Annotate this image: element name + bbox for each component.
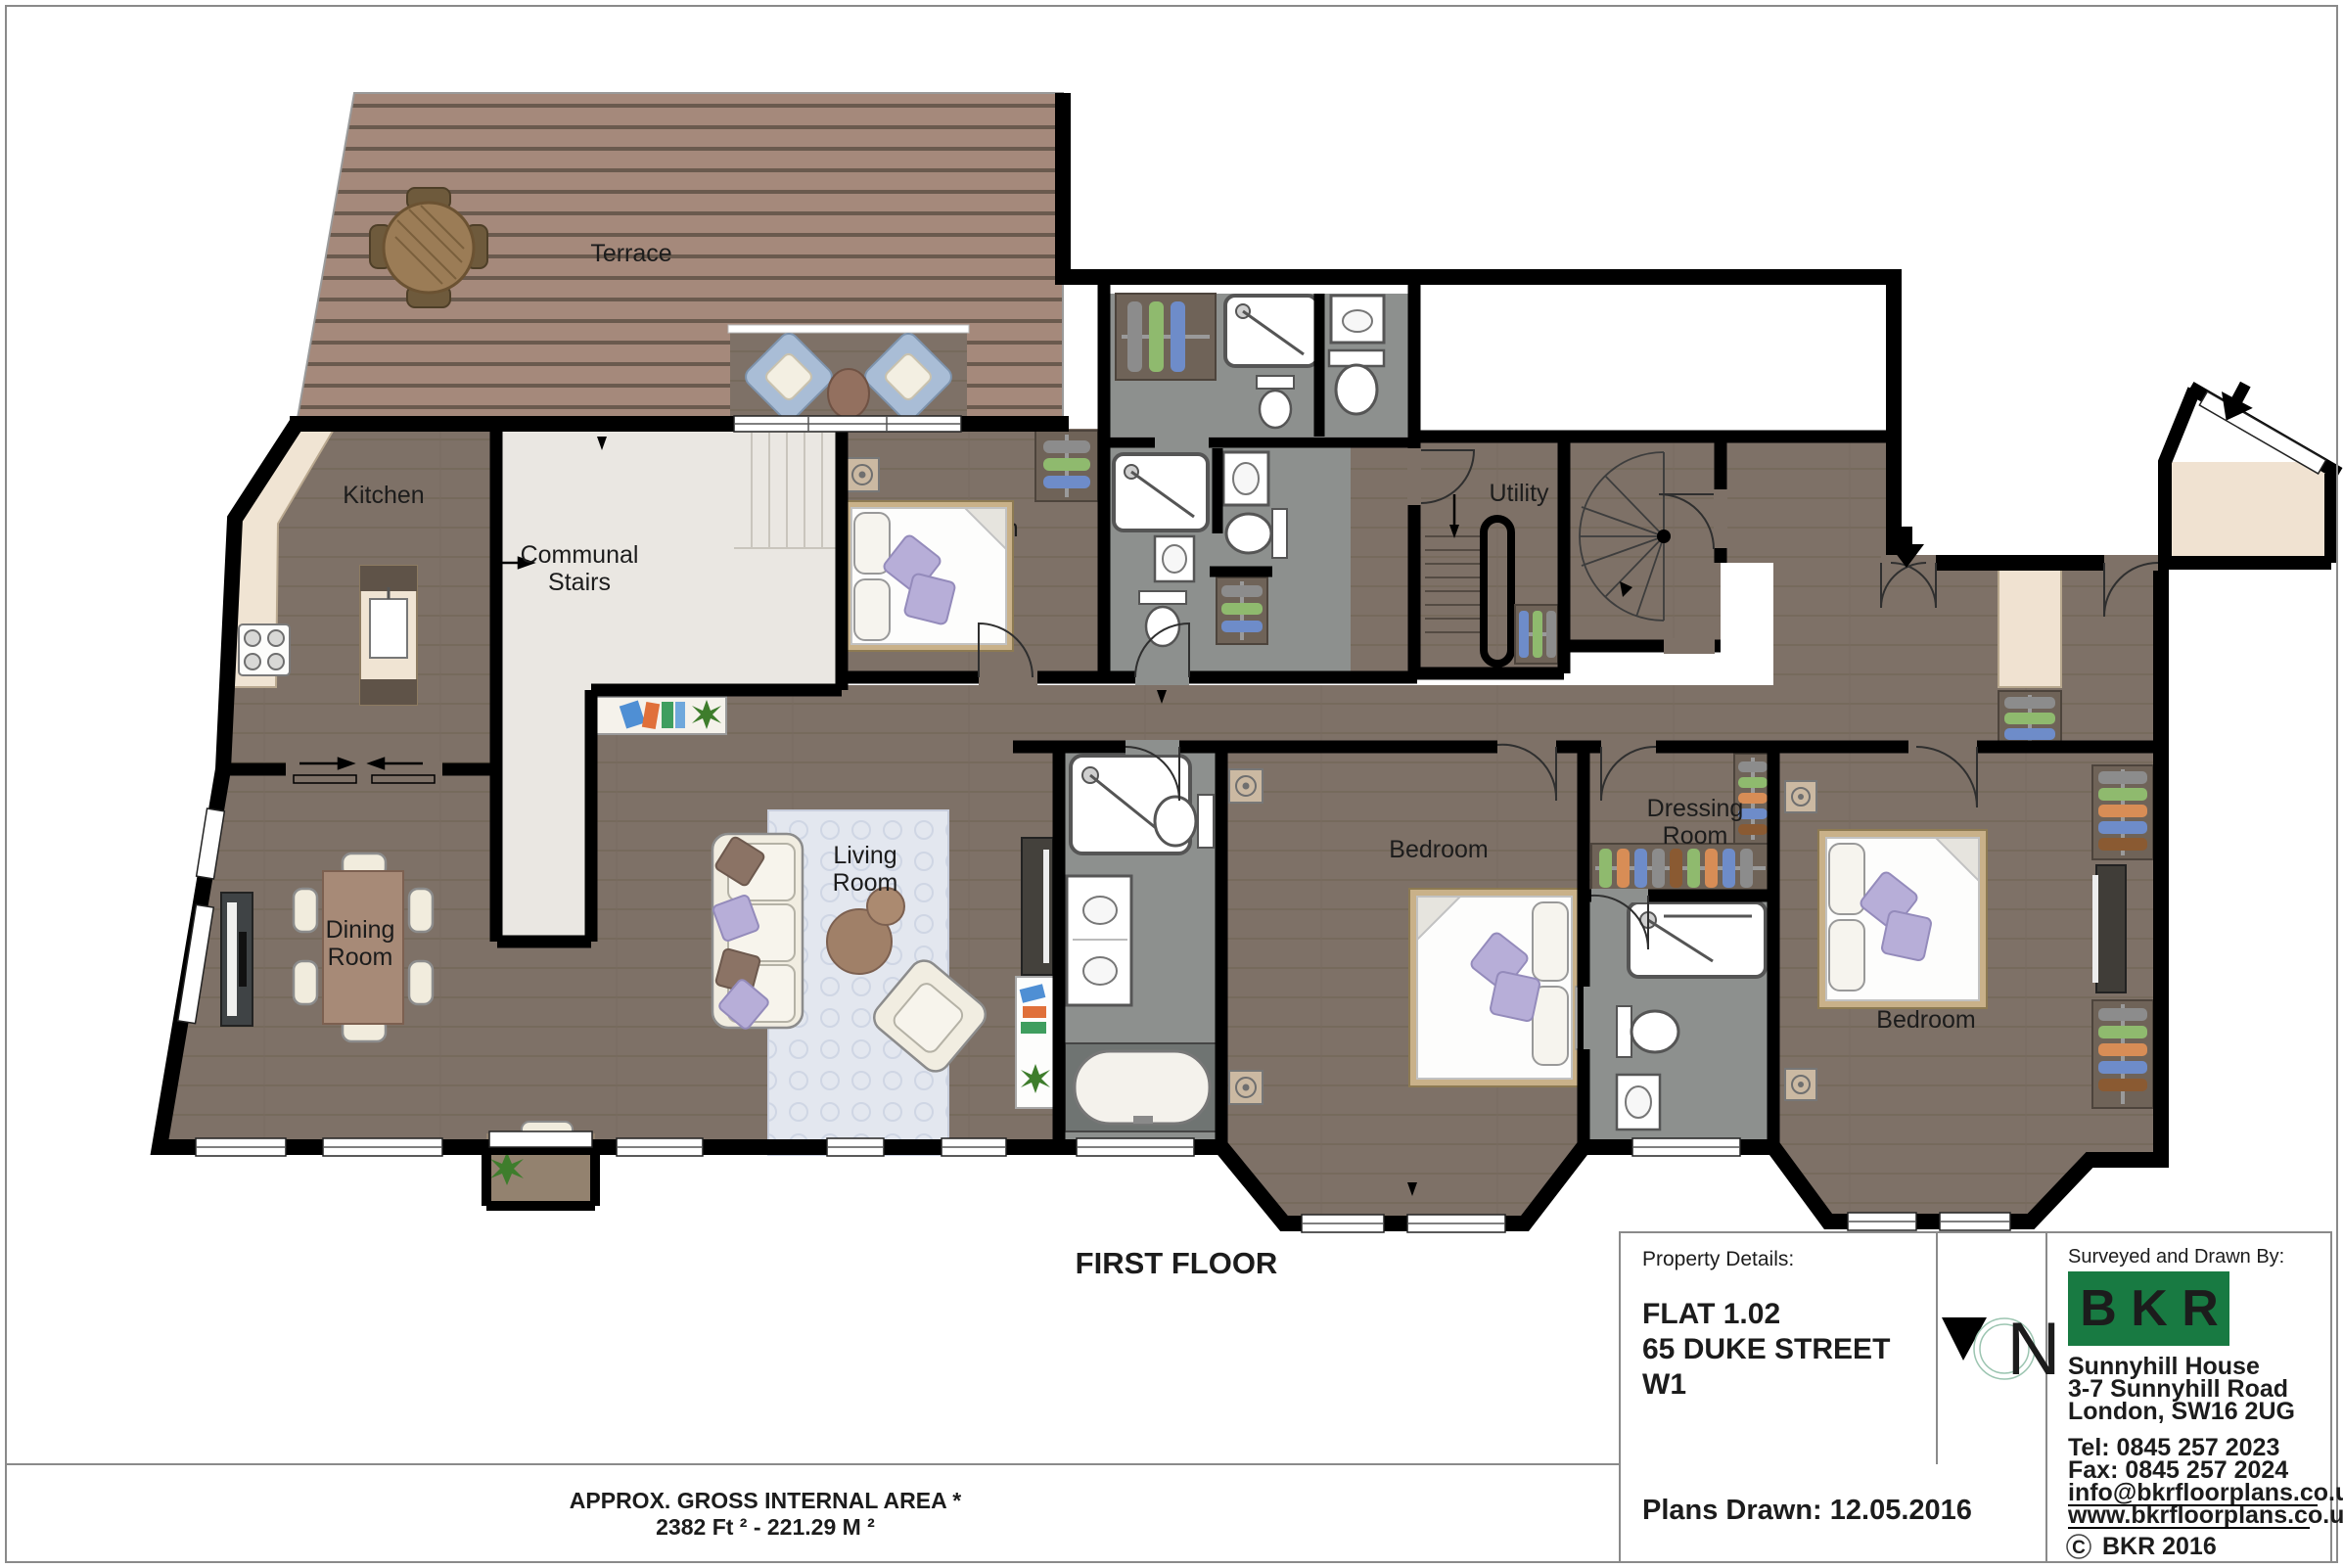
sink-icon [1331, 296, 1384, 343]
wardrobe-hall [1998, 691, 2061, 748]
bathtub-icon [1065, 1043, 1219, 1131]
toilet-icon [1226, 509, 1287, 558]
wall-light [846, 458, 879, 491]
svg-text:Room: Room [328, 944, 393, 971]
sink-icon [1617, 1075, 1660, 1130]
svg-text:2382 Ft ² - 221.29 M ²: 2382 Ft ² - 221.29 M ² [656, 1514, 875, 1540]
plans-drawn-date: Plans Drawn: 12.05.2016 [1642, 1495, 1972, 1526]
floorplan-drawing: Bedroom [0, 0, 2343, 1568]
tv-unit [1022, 838, 1053, 975]
svg-text:London, SW16 2UG: London, SW16 2UG [2068, 1398, 2295, 1425]
sofa [712, 834, 803, 1031]
double-bed-right [1818, 830, 1987, 1008]
shelf-unit [1016, 977, 1055, 1108]
landing-floor [2165, 462, 2331, 556]
console-table [587, 697, 726, 734]
north-letter: N [2007, 1308, 2061, 1391]
wardrobe-icon [1515, 605, 1558, 664]
fireplace [221, 893, 253, 1026]
dining-room-label: Dining [326, 916, 395, 944]
sink-icon [1155, 536, 1194, 581]
floorplan-page: Bedroom [0, 0, 2343, 1568]
double-bed-center [1409, 889, 1580, 1086]
copyright-text: BKR 2016 [2102, 1533, 2217, 1560]
shower-icon [1114, 454, 1208, 530]
toilet-icon [1257, 376, 1294, 428]
living-room-label: Living [833, 842, 896, 869]
flat-number: FLAT 1.02 [1642, 1298, 1780, 1330]
communal-stairs-label: Communal [521, 541, 639, 569]
wardrobe-bedroom-right-1 [2092, 765, 2153, 859]
floor-title: FIRST FLOOR [1076, 1246, 1278, 1280]
surveyed-label: Surveyed and Drawn By: [2068, 1246, 2284, 1268]
postcode: W1 [1642, 1368, 1686, 1401]
svg-text:C: C [2072, 1538, 2086, 1558]
website-link: www.bkrfloorplans.co.uk [2067, 1501, 2343, 1529]
wall-light [1229, 769, 1263, 803]
bkr-logo-text: B K R [2080, 1280, 2219, 1337]
street-address: 65 DUKE STREET [1642, 1333, 1890, 1365]
wall-light [1785, 1069, 1816, 1100]
sink-icon [370, 599, 407, 658]
double-bed-top [844, 501, 1013, 651]
toilet-icon [1155, 795, 1214, 848]
kitchen-label: Kitchen [343, 482, 424, 509]
svg-text:Stairs: Stairs [548, 569, 611, 596]
bedroom-center-label: Bedroom [1389, 836, 1488, 863]
tv-unit [2092, 865, 2126, 992]
toilet-icon [1617, 1006, 1678, 1057]
wardrobe-bedroom-right-2 [2092, 1000, 2153, 1108]
terrace-label: Terrace [590, 240, 671, 267]
wall-light [1229, 1071, 1263, 1104]
kitchen-island [360, 566, 417, 705]
dressing-room-label: Dressing [1647, 795, 1744, 822]
sink-icon [1223, 452, 1268, 505]
double-sink-vanity [1067, 876, 1131, 1005]
wardrobe-top-bedroom [1035, 431, 1098, 501]
svg-text:Room: Room [1663, 822, 1728, 850]
property-details-label: Property Details: [1642, 1248, 1794, 1270]
shower-icon [1225, 296, 1317, 366]
wall-light [1785, 781, 1816, 812]
bedroom-right-label: Bedroom [1876, 1006, 1975, 1034]
hall-cupboard [1998, 568, 2061, 687]
utility-label: Utility [1489, 480, 1549, 507]
wardrobe-dressing-south [1591, 844, 1769, 893]
svg-text:Room: Room [833, 869, 898, 897]
area-note: APPROX. GROSS INTERNAL AREA * [570, 1488, 961, 1513]
wardrobe-icon [1116, 294, 1216, 380]
wardrobe-icon [1217, 577, 1267, 644]
